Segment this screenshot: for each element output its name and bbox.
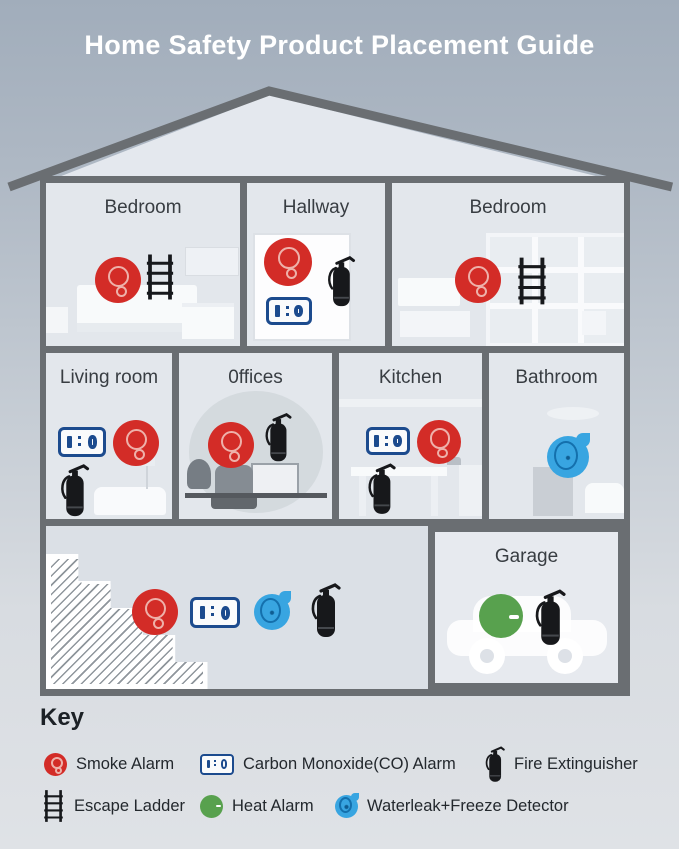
room-label-offices: 0ffices <box>179 367 332 389</box>
key-label: Fire Extinguisher <box>514 755 638 774</box>
room-living-room: Living room <box>46 353 172 519</box>
sofa <box>94 487 166 515</box>
fire-extinguisher-icon <box>308 581 342 639</box>
stool <box>582 311 606 335</box>
desk <box>185 493 327 498</box>
wall-shelf <box>339 399 482 407</box>
counter-right <box>459 465 482 516</box>
room-label-kitchen: Kitchen <box>339 367 482 389</box>
room-bedroom-2: Bedroom <box>392 183 624 346</box>
lamp-pole <box>146 465 148 489</box>
key-title: Key <box>40 704 84 732</box>
smoke-alarm-icon <box>132 589 178 635</box>
cabinet <box>400 311 470 337</box>
house-diagram: Bedroom Hallway Bedroom <box>40 176 630 696</box>
room-label-bathroom: Bathroom <box>489 367 624 389</box>
smoke-alarm-icon <box>455 257 501 303</box>
smoke-alarm-icon <box>44 753 67 776</box>
mirror <box>547 407 599 420</box>
plant <box>187 459 211 489</box>
co-alarm-icon <box>190 597 240 628</box>
waterleak-freeze-detector-icon <box>335 795 358 818</box>
bathtub <box>585 483 624 513</box>
island-leg-left <box>359 476 366 516</box>
key-item-co-alarm: Carbon Monoxide(CO) Alarm <box>200 742 456 786</box>
key-label: Carbon Monoxide(CO) Alarm <box>243 755 456 774</box>
fire-extinguisher-icon <box>366 461 396 516</box>
printer <box>398 278 460 306</box>
area-basement <box>46 526 428 689</box>
car-wheel-left-hub <box>480 649 494 663</box>
fire-extinguisher-icon <box>262 411 293 463</box>
dresser <box>182 303 234 339</box>
nightstand <box>46 307 68 333</box>
room-bedroom-1: Bedroom <box>46 183 240 346</box>
person-body <box>215 465 253 495</box>
monitor <box>251 463 299 495</box>
car-wheel-right-hub <box>558 649 572 663</box>
waterleak-freeze-detector-icon <box>254 594 290 630</box>
room-label-bedroom-1: Bedroom <box>46 197 240 219</box>
key-label: Escape Ladder <box>74 797 185 816</box>
fire-extinguisher-icon <box>325 254 356 308</box>
co-alarm-icon <box>200 754 234 775</box>
escape-ladder-icon <box>42 788 65 824</box>
room-kitchen: Kitchen <box>339 353 482 519</box>
key-item-escape-ladder: Escape Ladder <box>42 784 185 828</box>
smoke-alarm-icon <box>113 420 159 466</box>
smoke-alarm-icon <box>208 422 254 468</box>
room-label-hallway: Hallway <box>247 197 385 219</box>
bed-base <box>77 323 197 332</box>
smoke-alarm-icon <box>95 257 141 303</box>
key-item-fire-extinguisher: Fire Extinguisher <box>484 742 638 786</box>
smoke-alarm-icon <box>417 420 461 464</box>
co-alarm-icon <box>266 297 312 325</box>
room-label-living-room: Living room <box>46 367 172 389</box>
key-label: Smoke Alarm <box>76 755 174 774</box>
waterleak-freeze-detector-icon <box>547 436 589 478</box>
room-hallway: Hallway <box>247 183 385 346</box>
co-alarm-icon <box>58 427 106 457</box>
room-label-garage: Garage <box>435 546 618 568</box>
page-title: Home Safety Product Placement Guide <box>0 30 679 61</box>
key-item-heat-alarm: Heat Alarm <box>200 784 314 828</box>
co-alarm-icon <box>366 427 410 455</box>
key-item-smoke-alarm: Smoke Alarm <box>44 742 174 786</box>
room-garage: Garage <box>429 526 624 689</box>
smoke-alarm-icon <box>264 238 312 286</box>
room-label-bedroom-2: Bedroom <box>392 197 624 219</box>
escape-ladder-icon <box>143 252 177 302</box>
key-label: Waterleak+Freeze Detector <box>367 797 569 816</box>
fire-extinguisher-icon <box>533 586 566 648</box>
room-offices: 0ffices <box>179 353 332 519</box>
fire-extinguisher-icon <box>58 462 90 518</box>
island-leg-right <box>431 476 438 516</box>
key-label: Heat Alarm <box>232 797 314 816</box>
picture-frame <box>185 247 239 276</box>
infographic-home-safety-guide: Home Safety Product Placement Guide Bedr… <box>0 0 679 849</box>
escape-ladder-icon <box>514 255 550 307</box>
heat-alarm-icon <box>479 594 523 638</box>
heat-alarm-icon <box>200 795 223 818</box>
key-item-waterleak-freeze-detector: Waterleak+Freeze Detector <box>335 784 569 828</box>
garage-walls: Garage <box>429 526 624 689</box>
fire-extinguisher-icon <box>484 744 505 784</box>
room-bathroom: Bathroom <box>489 353 624 519</box>
